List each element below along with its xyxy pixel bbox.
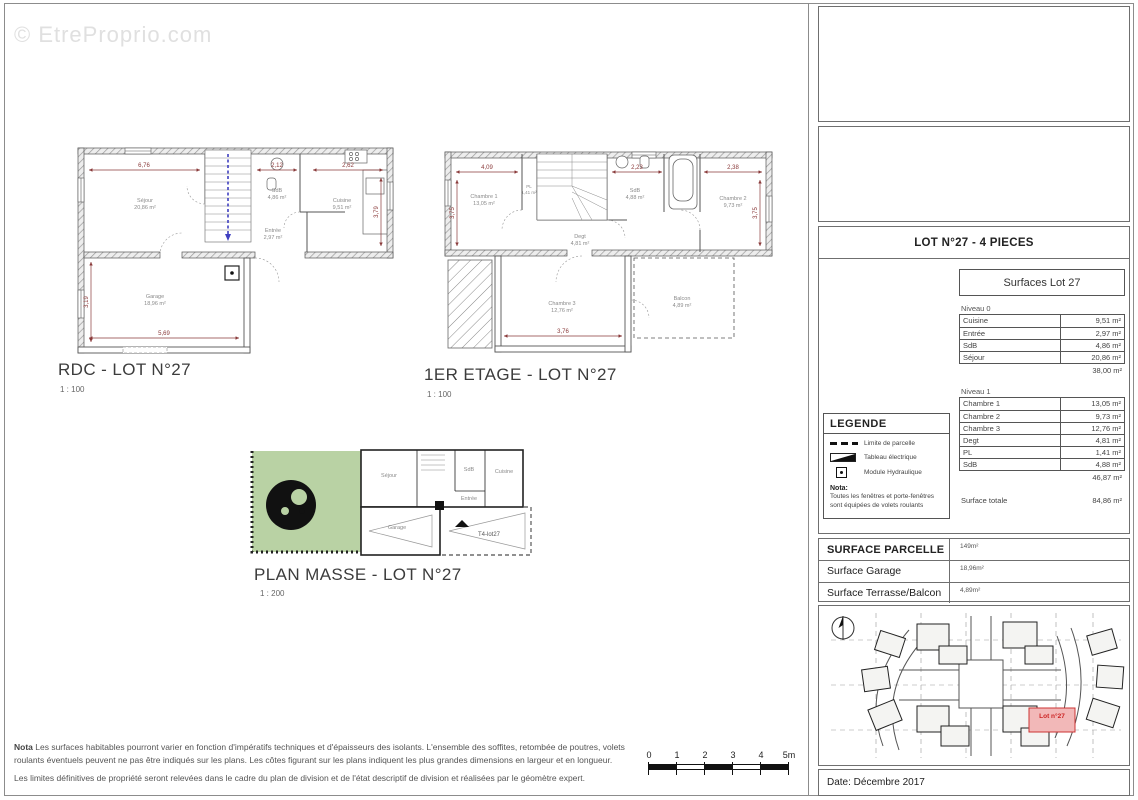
lot-header: LOT N°27 - 4 PIECES xyxy=(819,227,1129,259)
stairs-icon xyxy=(537,154,607,220)
room-area: 20,86 m² xyxy=(134,205,156,211)
masse-plan-drawing: Séjour SdB Cuisine Entrée Garage T4-lot2… xyxy=(249,441,535,563)
dim-label: 2,12 xyxy=(271,163,283,169)
legend-title: LEGENDE xyxy=(824,414,949,434)
room-area: 13,05 m² xyxy=(473,201,495,207)
row-value: 9,73 m² xyxy=(1060,411,1124,422)
footer-notes: Nota Les surfaces habitables pourront va… xyxy=(14,741,636,785)
roads xyxy=(876,616,1081,756)
stairs-icon xyxy=(205,150,251,242)
scale-tick: 3 xyxy=(730,750,735,760)
parcelle-row-value: 149m² xyxy=(949,539,1129,560)
dim-label: 3,75 xyxy=(753,207,759,219)
module-hydraulique-icon xyxy=(435,501,444,510)
room-label: Cuisine xyxy=(333,198,351,204)
room-area: 18,96 m² xyxy=(144,301,166,307)
room-label: Garage xyxy=(146,294,164,300)
row-value: 20,86 m² xyxy=(1060,352,1124,363)
etage-plan-title: 1ER ETAGE - LOT N°27 xyxy=(424,365,617,385)
etage-walls xyxy=(445,152,772,352)
row-value: 1,41 m² xyxy=(1060,447,1124,458)
room-label: SdB xyxy=(464,467,475,473)
room-label: Cuisine xyxy=(495,469,513,475)
legend-box: LEGENDE Limite de parcelle Tableau élect… xyxy=(823,413,950,519)
electrical-panel-icon xyxy=(830,453,864,462)
niveau0-subtotal: 38,00 m² xyxy=(959,364,1125,377)
module-hydraulique-icon xyxy=(225,266,239,280)
row-value: 13,05 m² xyxy=(1060,398,1124,410)
room-label: PL xyxy=(526,184,532,189)
room-label: Balcon xyxy=(674,296,691,302)
dim-label: 2,62 xyxy=(342,163,354,169)
room-area: 9,73 m² xyxy=(724,203,743,209)
nota-label: Nota xyxy=(14,742,33,752)
rdc-plan-title: RDC - LOT N°27 xyxy=(58,360,191,380)
etage-room-labels: Chambre 1 13,05 m² PL 1,41 m² SdB 4,88 m… xyxy=(470,184,746,314)
row-label: SdB xyxy=(960,459,1060,470)
dim-label: 3,76 xyxy=(557,329,569,335)
row-value: 2,97 m² xyxy=(1060,328,1124,339)
row-label: Séjour xyxy=(960,352,1060,363)
room-label: Chambre 1 xyxy=(470,194,497,200)
room-label: Entrée xyxy=(461,496,477,502)
row-label: Degt xyxy=(960,435,1060,446)
room-area: 4,81 m² xyxy=(571,241,590,247)
legend-item-label: Limite de parcelle xyxy=(864,440,915,447)
row-value: 4,88 m² xyxy=(1060,459,1124,470)
etage-doors xyxy=(502,210,700,318)
niveau0-label: Niveau 0 xyxy=(961,304,1125,313)
parcelle-table: SURFACE PARCELLE 149m² Surface Garage 18… xyxy=(818,538,1130,602)
nota-paragraph-2: Les limites définitives de propriété ser… xyxy=(14,772,636,785)
parcelle-row-label: SURFACE PARCELLE xyxy=(819,544,949,556)
sanitary-fixtures-icon xyxy=(267,150,387,234)
room-label: Séjour xyxy=(381,473,397,479)
room-label: Degt xyxy=(574,234,586,240)
room-area: 1,41 m² xyxy=(521,190,537,195)
etage-floorplan-drawing: 4,09 2,23 2,38 3,75 3,75 3,76 Chambre 1 … xyxy=(432,140,778,368)
room-area: 4,86 m² xyxy=(268,195,287,201)
row-label: SdB xyxy=(960,340,1060,351)
room-label: Garage xyxy=(388,525,406,531)
row-label: Chambre 3 xyxy=(960,423,1060,434)
lot-summary-box: LOT N°27 - 4 PIECES Surfaces Lot 27 Nive… xyxy=(818,226,1130,534)
scale-bar-segments xyxy=(648,764,789,770)
scale-tick: 4 xyxy=(758,750,763,760)
north-arrow-icon xyxy=(832,616,854,640)
rdc-plan-scale: 1 : 100 xyxy=(60,385,84,394)
room-area: 12,76 m² xyxy=(551,308,573,314)
parcelle-row-label: Surface Garage xyxy=(819,565,949,577)
nota-paragraph-1: Les surfaces habitables pourront varier … xyxy=(14,742,625,765)
dim-label: 3,75 xyxy=(450,207,456,219)
surface-totale-label: Surface totale xyxy=(959,496,1092,505)
niveau1-subtotal: 46,87 m² xyxy=(959,471,1125,484)
dim-label: 2,23 xyxy=(631,165,643,171)
scale-tick: 2 xyxy=(702,750,707,760)
dim-label: 2,38 xyxy=(727,165,739,171)
legend-item-label: Tableau électrique xyxy=(864,454,917,461)
masse-plan-title: PLAN MASSE - LOT N°27 xyxy=(254,565,462,585)
highlighted-lot: Lot n°27 xyxy=(1029,708,1075,732)
terrace-hatch xyxy=(448,260,492,348)
room-area: 4,88 m² xyxy=(626,195,645,201)
dim-label: 6,76 xyxy=(138,163,150,169)
niveau1-table: Chambre 113,05 m² Chambre 29,73 m² Chamb… xyxy=(959,397,1125,471)
titleblock-logo-box xyxy=(818,6,1130,122)
lot-type-label: T4-lot27 xyxy=(478,532,501,538)
surface-totale-value: 84,86 m² xyxy=(1092,496,1125,505)
surfaces-table: Surfaces Lot 27 Niveau 0 Cuisine9,51 m² … xyxy=(959,269,1125,505)
legend-nota-label: Nota: xyxy=(830,485,848,492)
dim-label: 3,19 xyxy=(84,296,90,308)
parcelle-row-value: 4,89m² xyxy=(949,583,1129,603)
room-label: SdB xyxy=(630,188,641,194)
etage-windows xyxy=(445,152,772,222)
date-box: Date: Décembre 2017 xyxy=(818,769,1130,796)
scale-tick: 0 xyxy=(646,750,651,760)
niveau0-table: Cuisine9,51 m² Entrée2,97 m² SdB4,86 m² … xyxy=(959,314,1125,364)
scale-tick: 5m xyxy=(783,750,796,760)
parcel-limit-icon xyxy=(830,442,864,445)
dim-label: 3,79 xyxy=(374,206,380,218)
row-value: 4,86 m² xyxy=(1060,340,1124,351)
garage-door xyxy=(123,347,167,353)
masse-garage xyxy=(361,507,531,555)
scale-tick: 1 xyxy=(674,750,679,760)
location-map-drawing: Lot n°27 xyxy=(821,608,1129,763)
room-label: SdB xyxy=(272,188,283,194)
scale-bar: 0 1 2 3 4 5m xyxy=(648,750,790,780)
rdc-floorplan-drawing: 6,76 2,12 2,62 3,79 3,19 5,69 Séjour 20,… xyxy=(45,140,401,366)
titleblock-info-box xyxy=(818,126,1130,222)
niveau1-label: Niveau 1 xyxy=(961,387,1125,396)
date-label: Date: Décembre 2017 xyxy=(827,777,925,788)
row-label: Entrée xyxy=(960,328,1060,339)
row-value: 4,81 m² xyxy=(1060,435,1124,446)
room-label: Séjour xyxy=(137,198,153,204)
room-area: 4,89 m² xyxy=(673,303,692,309)
dim-label: 4,09 xyxy=(481,165,493,171)
dim-label: 5,69 xyxy=(158,331,170,337)
parcelle-row-label: Surface Terrasse/Balcon xyxy=(819,587,949,599)
legend-item-label: Module Hydraulique xyxy=(864,469,922,476)
main-sidebar-divider xyxy=(808,3,809,796)
bathtub-icon xyxy=(669,155,697,209)
surfaces-title: Surfaces Lot 27 xyxy=(959,269,1125,296)
masse-plan-scale: 1 : 200 xyxy=(260,589,284,598)
row-label: Chambre 1 xyxy=(960,398,1060,410)
room-label: Chambre 2 xyxy=(719,196,746,202)
location-map-box: Lot n°27 xyxy=(818,605,1130,766)
etage-plan-scale: 1 : 100 xyxy=(427,390,451,399)
room-area: 9,51 m² xyxy=(333,205,352,211)
row-label: Chambre 2 xyxy=(960,411,1060,422)
hydraulic-module-icon xyxy=(830,467,864,478)
room-label: Chambre 3 xyxy=(548,301,575,307)
row-label: PL xyxy=(960,447,1060,458)
room-label: Entrée xyxy=(265,228,281,234)
row-value: 9,51 m² xyxy=(1060,315,1124,327)
parcelle-row-value: 18,96m² xyxy=(949,561,1129,581)
highlighted-lot-label: Lot n°27 xyxy=(1039,712,1065,720)
row-value: 12,76 m² xyxy=(1060,423,1124,434)
room-area: 2,97 m² xyxy=(264,235,283,241)
legend-nota-text: Toutes les fenêtres et porte-fenêtres so… xyxy=(830,493,943,510)
tree-icon xyxy=(266,480,316,530)
north-pointer-icon xyxy=(455,520,469,527)
watermark: © EtreProprio.com xyxy=(14,22,212,48)
row-label: Cuisine xyxy=(960,315,1060,327)
